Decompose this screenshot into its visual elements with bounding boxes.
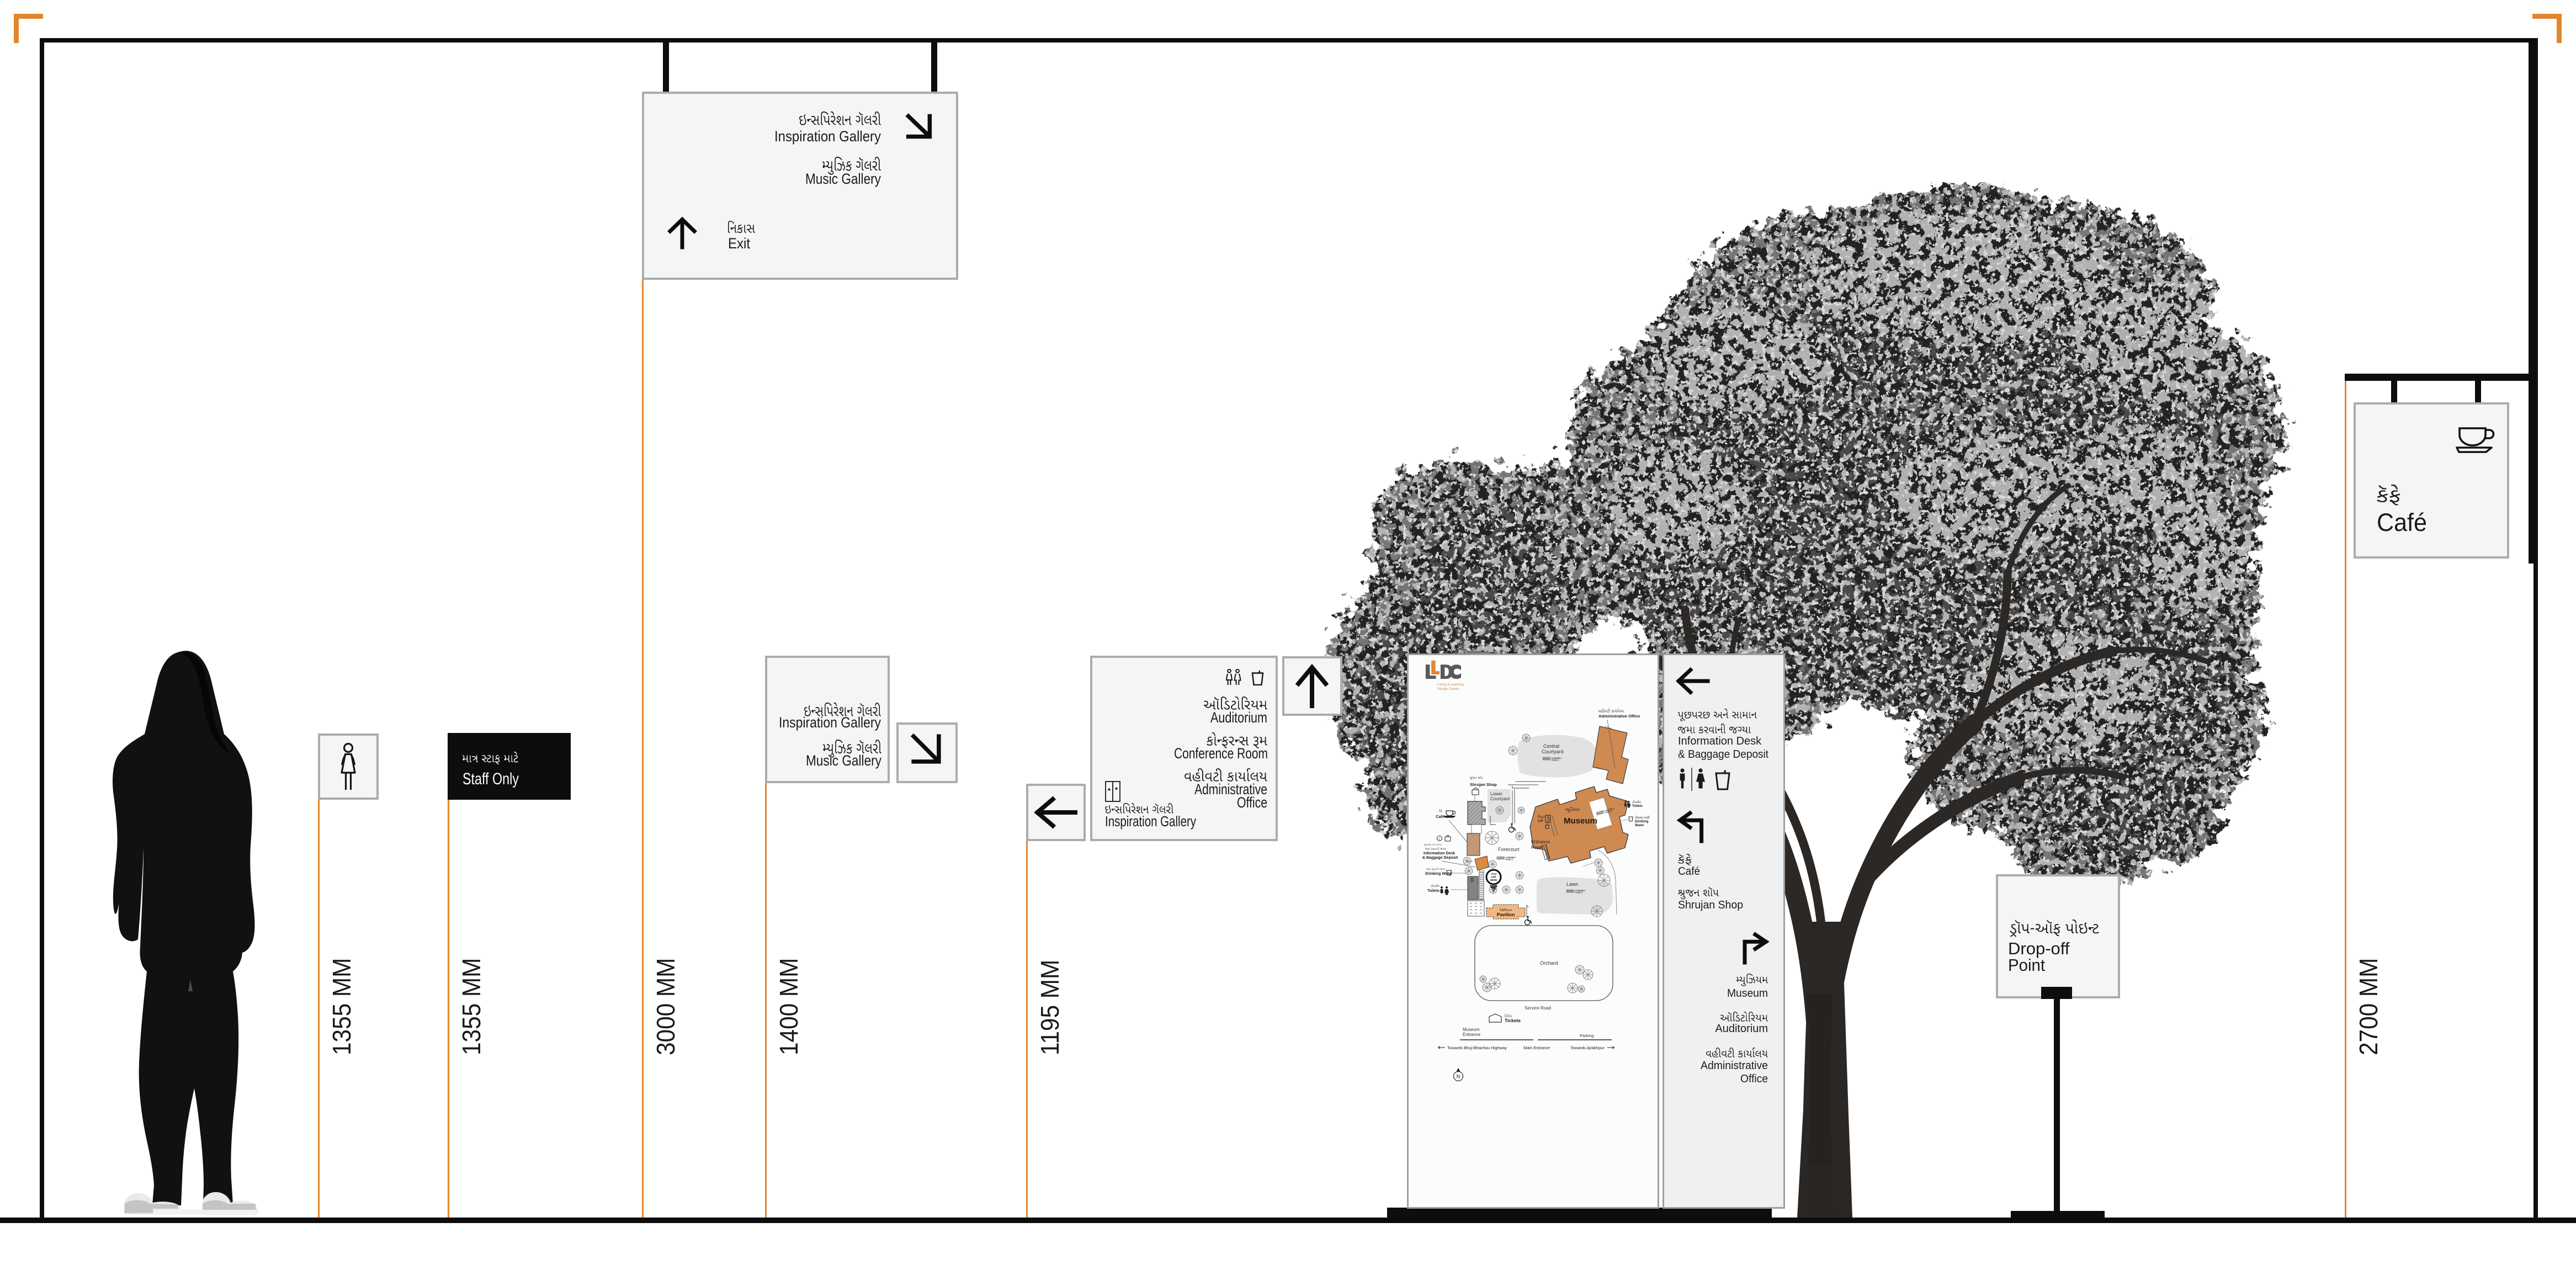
svg-text:Shrujan Shop: Shrujan Shop: [1470, 782, 1497, 787]
svg-text:YOU: YOU: [1491, 873, 1497, 875]
svg-text:POINT 3: POINT 3: [1575, 892, 1582, 894]
svg-text:Café: Café: [1436, 814, 1444, 819]
svg-text:Central: Central: [1543, 743, 1559, 749]
svg-text:Courtyard: Courtyard: [1490, 796, 1510, 801]
svg-text:ટોયલેટ: ટોયલેટ: [1632, 800, 1642, 804]
svg-text:Toilets: Toilets: [1632, 805, 1643, 808]
svg-text:લિફ્ટ: લિફ્ટ: [1538, 815, 1545, 819]
svg-text:Orchard: Orchard: [1540, 960, 1558, 966]
svg-text:ટોયલેટ: ટોયલેટ: [1431, 884, 1440, 888]
svg-text:Lower: Lower: [1490, 791, 1502, 796]
svg-text:Water: Water: [1635, 824, 1644, 827]
svg-text:Drinking Water: Drinking Water: [1425, 872, 1453, 876]
svg-text:Lift: Lift: [1538, 820, 1543, 823]
svg-text:Administrative Office: Administrative Office: [1598, 714, 1640, 719]
svg-text:Entrance: Entrance: [1531, 839, 1550, 844]
svg-text:Courtyard: Courtyard: [1542, 749, 1564, 754]
svg-text:Pavilion: Pavilion: [1497, 912, 1515, 917]
svg-text:Towards Bhuj-Bhachau Highway: Towards Bhuj-Bhachau Highway: [1447, 1045, 1507, 1050]
svg-text:Service Road: Service Road: [1525, 1006, 1551, 1011]
svg-text:Museum: Museum: [1564, 816, 1597, 826]
svg-text:POINT 1: POINT 1: [1506, 859, 1513, 861]
svg-text:પીવાનું પાણી: પીવાનું પાણી: [1635, 816, 1650, 820]
svg-text:Lawn: Lawn: [1566, 881, 1579, 887]
svg-text:& Baggage Deposit: & Baggage Deposit: [1422, 856, 1458, 860]
svg-text:Towards Ajrakhpur: Towards Ajrakhpur: [1570, 1045, 1605, 1050]
svg-text:Main Entrance: Main Entrance: [1523, 1045, 1550, 1050]
svg-text:Forecourt: Forecourt: [1498, 847, 1520, 852]
svg-text:Drinking: Drinking: [1635, 820, 1649, 823]
svg-text:Toilets: Toilets: [1427, 889, 1440, 893]
svg-text:ARE: ARE: [1491, 876, 1496, 879]
svg-text:Tickets: Tickets: [1505, 1018, 1521, 1023]
svg-text:POINT 4: POINT 4: [1552, 759, 1559, 762]
svg-text:HERE: HERE: [1490, 879, 1497, 881]
svg-text:Foyer: Foyer: [1531, 844, 1543, 850]
svg-text:Information Desk: Information Desk: [1424, 852, 1455, 855]
svg-text:i: i: [1438, 837, 1440, 841]
